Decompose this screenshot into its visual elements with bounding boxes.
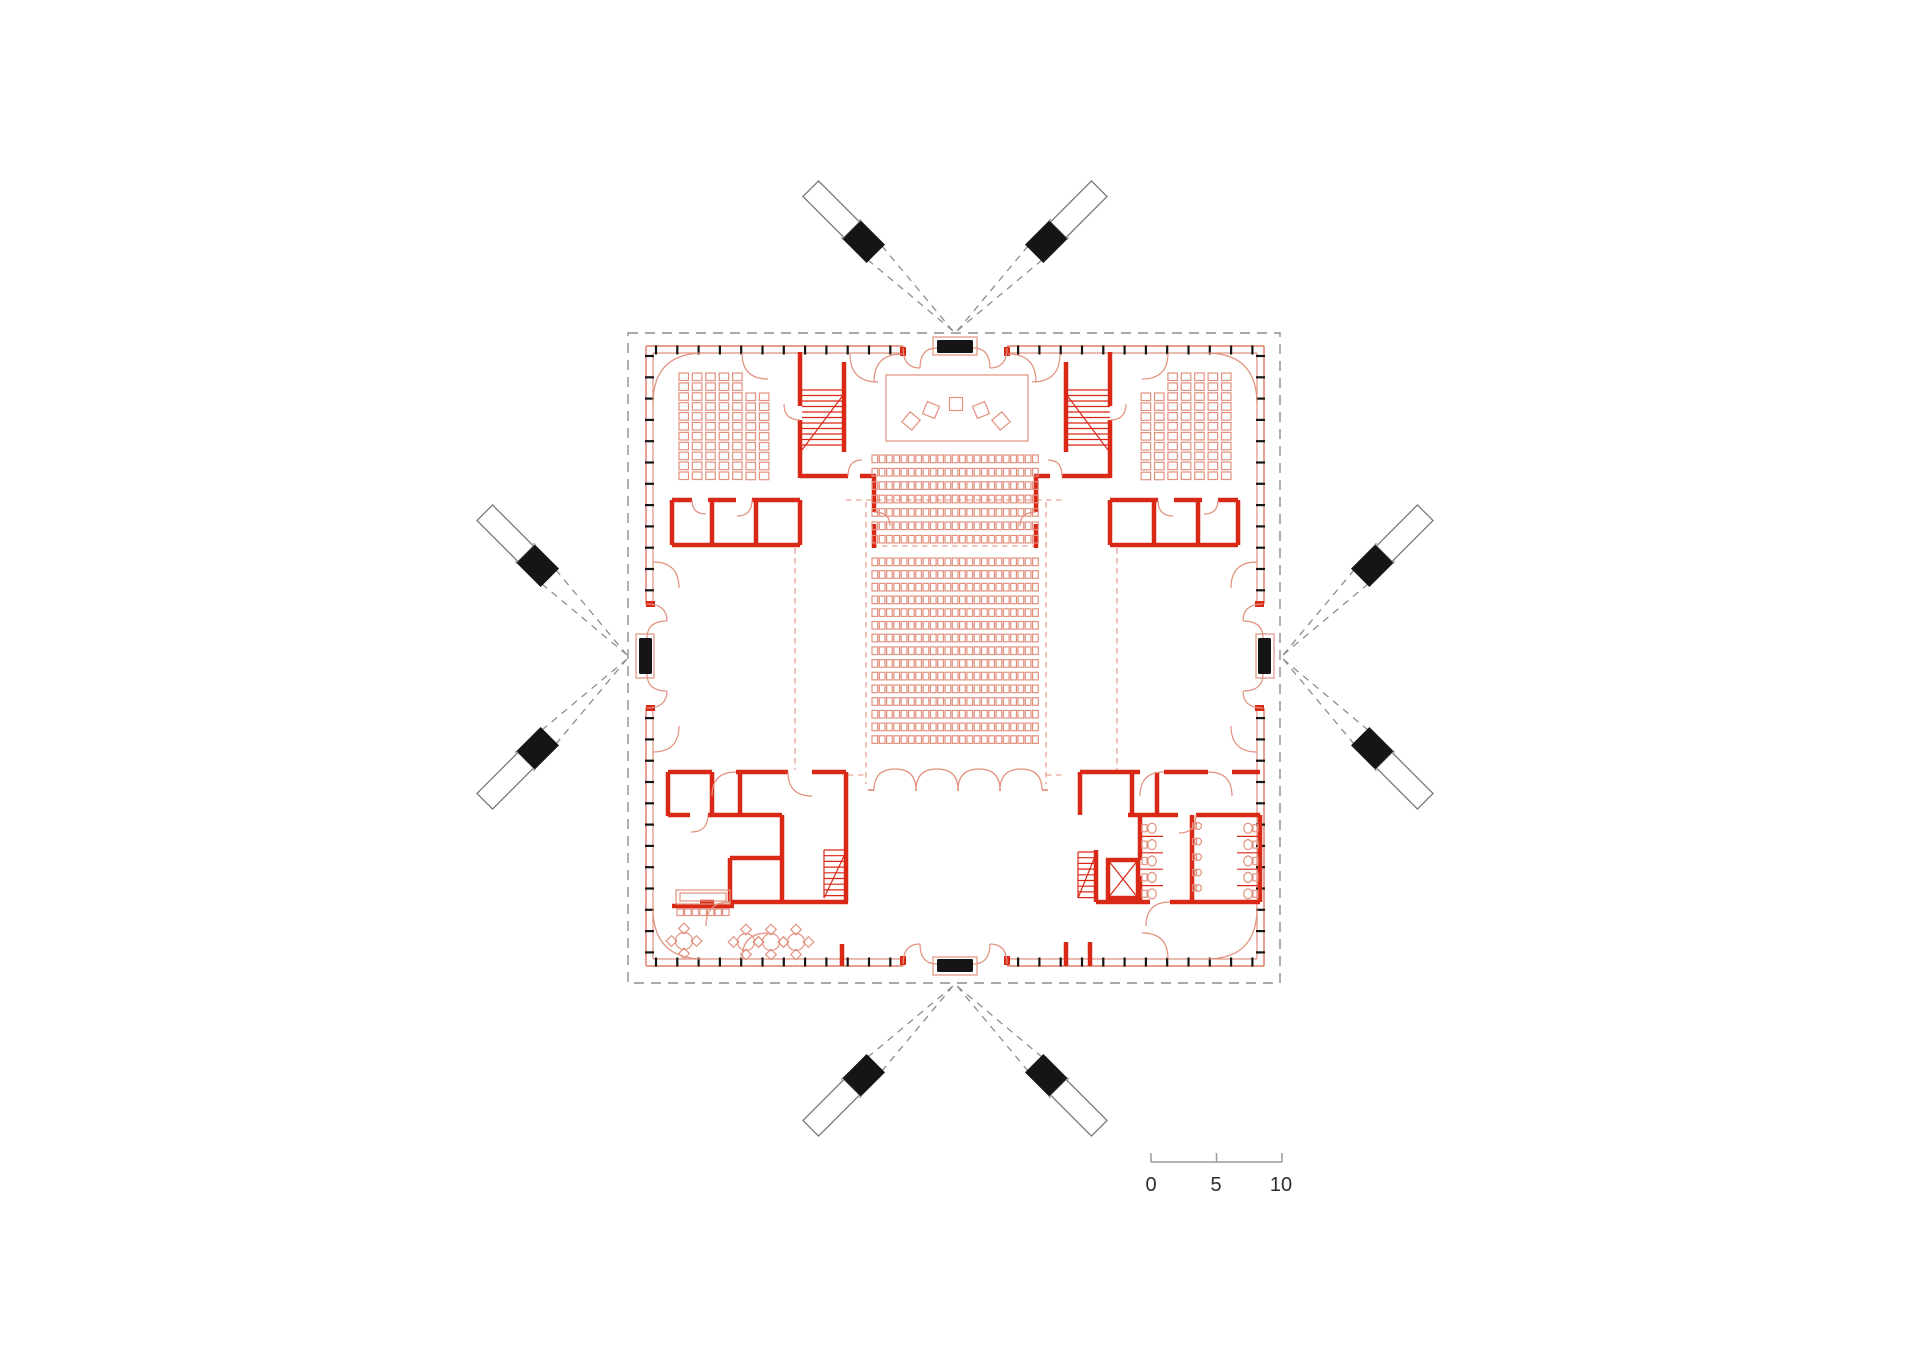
seat xyxy=(960,660,966,668)
seat xyxy=(945,455,951,463)
seat xyxy=(1025,482,1031,490)
seat xyxy=(930,522,936,530)
double-door-swing xyxy=(958,769,1000,790)
facade-mullion-ticks xyxy=(645,346,1265,967)
seat xyxy=(706,393,716,401)
seat xyxy=(916,698,922,706)
seat xyxy=(982,522,988,530)
facade-envelope xyxy=(645,346,1265,967)
seat xyxy=(923,495,929,503)
seat xyxy=(960,647,966,655)
toilet-bowl xyxy=(1148,823,1156,833)
seat xyxy=(679,432,689,440)
seat xyxy=(1033,698,1039,706)
seat xyxy=(887,634,893,642)
seat xyxy=(1003,622,1009,630)
seat xyxy=(679,393,689,401)
seat xyxy=(1018,495,1024,503)
seat xyxy=(1003,698,1009,706)
seat xyxy=(982,698,988,706)
seat xyxy=(967,558,973,566)
seat xyxy=(982,571,988,579)
seat xyxy=(879,736,885,744)
seat xyxy=(967,583,973,591)
seat xyxy=(692,413,702,421)
seat xyxy=(1033,583,1039,591)
seat xyxy=(887,672,893,680)
mast-body xyxy=(803,181,860,238)
seat xyxy=(909,634,915,642)
seat xyxy=(945,698,951,706)
stage-outline xyxy=(886,375,1028,441)
seat xyxy=(930,509,936,517)
seat xyxy=(960,596,966,604)
seat xyxy=(746,413,756,421)
seat xyxy=(894,685,900,693)
seat xyxy=(945,723,951,731)
seat xyxy=(909,609,915,617)
seat xyxy=(989,672,995,680)
seat xyxy=(1018,672,1024,680)
seat xyxy=(952,509,958,517)
double-door-swing xyxy=(1000,769,1042,790)
scale-bar-line xyxy=(1151,1153,1282,1162)
seat xyxy=(1025,647,1031,655)
seat xyxy=(887,710,893,718)
seat xyxy=(879,468,885,476)
seat xyxy=(989,571,995,579)
seat xyxy=(982,482,988,490)
seat xyxy=(982,509,988,517)
scale-bar: 0 5 10 xyxy=(1145,1153,1292,1196)
seat xyxy=(996,723,1002,731)
seat xyxy=(916,571,922,579)
seat xyxy=(996,698,1002,706)
corner-door-swings xyxy=(653,353,1257,959)
seat xyxy=(989,522,995,530)
seat xyxy=(960,685,966,693)
seat xyxy=(733,423,743,431)
seat xyxy=(938,647,944,655)
seat xyxy=(982,685,988,693)
seat xyxy=(923,710,929,718)
seat xyxy=(894,455,900,463)
seat xyxy=(733,383,743,391)
seat xyxy=(692,462,702,470)
scale-label-5: 5 xyxy=(1210,1174,1221,1196)
seat xyxy=(872,583,878,591)
seat xyxy=(909,710,915,718)
seat xyxy=(1011,622,1017,630)
seat xyxy=(996,672,1002,680)
bar-stool xyxy=(677,909,684,916)
seat xyxy=(982,660,988,668)
seat xyxy=(909,660,915,668)
seat xyxy=(930,535,936,543)
seat xyxy=(1003,468,1009,476)
seat xyxy=(916,609,922,617)
seat xyxy=(894,736,900,744)
seat xyxy=(872,634,878,642)
seat xyxy=(945,571,951,579)
seat xyxy=(1003,672,1009,680)
seat xyxy=(923,685,929,693)
seat xyxy=(996,468,1002,476)
seat xyxy=(989,710,995,718)
seat xyxy=(952,647,958,655)
seat xyxy=(901,522,907,530)
seat xyxy=(952,482,958,490)
seat xyxy=(872,723,878,731)
seat xyxy=(872,736,878,744)
stair-detail xyxy=(824,850,846,898)
seat xyxy=(916,522,922,530)
seat xyxy=(901,672,907,680)
seat xyxy=(952,685,958,693)
seat xyxy=(1003,634,1009,642)
seat xyxy=(894,482,900,490)
seat xyxy=(879,723,885,731)
seat xyxy=(1025,535,1031,543)
seat xyxy=(879,660,885,668)
seat xyxy=(945,468,951,476)
cluster-walls xyxy=(672,352,876,548)
seat xyxy=(909,522,915,530)
seat xyxy=(1025,736,1031,744)
seat xyxy=(952,710,958,718)
seat xyxy=(1018,685,1024,693)
seat xyxy=(996,509,1002,517)
seat xyxy=(1003,455,1009,463)
seat xyxy=(887,660,893,668)
seat xyxy=(1003,583,1009,591)
seat xyxy=(887,558,893,566)
seat xyxy=(719,472,729,480)
seat xyxy=(960,468,966,476)
seat xyxy=(901,647,907,655)
seating-grid-left xyxy=(679,373,769,480)
mast-body xyxy=(1376,752,1433,809)
seat xyxy=(923,622,929,630)
seat xyxy=(706,462,716,470)
seat xyxy=(1033,634,1039,642)
seat xyxy=(982,622,988,630)
mast xyxy=(476,650,637,811)
seat xyxy=(872,685,878,693)
seat xyxy=(923,571,929,579)
seat xyxy=(1033,710,1039,718)
auditorium-door-row xyxy=(868,769,1048,790)
seat xyxy=(719,462,729,470)
toilet-bowl xyxy=(1148,872,1156,882)
seat xyxy=(1018,736,1024,744)
seat xyxy=(719,442,729,450)
seat xyxy=(1003,495,1009,503)
seat xyxy=(967,455,973,463)
seat xyxy=(989,647,995,655)
wash-basin xyxy=(1195,838,1202,845)
seat xyxy=(872,609,878,617)
seat xyxy=(967,698,973,706)
seat xyxy=(974,622,980,630)
seat xyxy=(879,482,885,490)
entrance-bottom xyxy=(903,944,1007,975)
seat xyxy=(1033,596,1039,604)
seat xyxy=(923,723,929,731)
seat xyxy=(692,452,702,460)
seat xyxy=(1018,596,1024,604)
bar-stool xyxy=(692,909,699,916)
mast-body xyxy=(1376,505,1433,562)
cafe-table xyxy=(788,934,805,951)
mast xyxy=(1274,650,1435,811)
seat xyxy=(1033,558,1039,566)
facade-outer-line xyxy=(646,346,1264,966)
seat xyxy=(930,455,936,463)
seat xyxy=(909,672,915,680)
seat xyxy=(916,455,922,463)
seat xyxy=(930,685,936,693)
seat xyxy=(719,403,729,411)
mast-body xyxy=(477,752,534,809)
mast-body xyxy=(1050,1079,1107,1136)
seat xyxy=(960,622,966,630)
seat xyxy=(1033,736,1039,744)
bar-stool xyxy=(685,909,692,916)
seat xyxy=(967,634,973,642)
stair-diagonal xyxy=(802,394,844,450)
cafe-table xyxy=(763,934,780,951)
seat xyxy=(916,723,922,731)
seat xyxy=(1018,723,1024,731)
seat xyxy=(916,647,922,655)
toilet-bowl xyxy=(1244,823,1252,833)
seat xyxy=(879,609,885,617)
seat xyxy=(901,736,907,744)
seat xyxy=(1033,455,1039,463)
seat xyxy=(967,609,973,617)
seat xyxy=(974,698,980,706)
seat xyxy=(887,571,893,579)
wash-basin xyxy=(1195,823,1202,830)
stage-chair xyxy=(902,412,920,430)
seat xyxy=(872,710,878,718)
seat xyxy=(982,558,988,566)
seat xyxy=(952,596,958,604)
seat xyxy=(916,736,922,744)
seat xyxy=(923,558,929,566)
seat xyxy=(989,468,995,476)
seat xyxy=(923,482,929,490)
seat xyxy=(974,583,980,591)
seat xyxy=(894,495,900,503)
seat xyxy=(938,609,944,617)
seat xyxy=(759,452,769,460)
stair-treads xyxy=(1066,390,1110,445)
seat xyxy=(1025,622,1031,630)
seat xyxy=(982,723,988,731)
seat xyxy=(996,495,1002,503)
seat xyxy=(930,634,936,642)
seat xyxy=(967,535,973,543)
seat xyxy=(945,558,951,566)
bar-stool xyxy=(715,909,722,916)
seat xyxy=(945,509,951,517)
seat xyxy=(1033,685,1039,693)
seat xyxy=(923,509,929,517)
seat xyxy=(1018,698,1024,706)
seat xyxy=(692,472,702,480)
seat xyxy=(879,522,885,530)
seat xyxy=(894,634,900,642)
seat xyxy=(930,583,936,591)
seat xyxy=(1033,723,1039,731)
seat xyxy=(974,736,980,744)
seat xyxy=(746,452,756,460)
seat xyxy=(1025,596,1031,604)
seat xyxy=(1025,609,1031,617)
seat xyxy=(887,609,893,617)
seat xyxy=(930,660,936,668)
seat xyxy=(887,596,893,604)
seat xyxy=(1003,509,1009,517)
seat xyxy=(989,596,995,604)
seat xyxy=(989,622,995,630)
seat xyxy=(733,472,743,480)
seat xyxy=(974,495,980,503)
seat xyxy=(679,472,689,480)
seat xyxy=(746,443,756,451)
seat xyxy=(974,509,980,517)
seat xyxy=(692,393,702,401)
toilet-tank xyxy=(1142,825,1147,832)
seat xyxy=(887,647,893,655)
seat xyxy=(996,522,1002,530)
seat xyxy=(982,596,988,604)
seat xyxy=(1033,609,1039,617)
seat xyxy=(1003,522,1009,530)
seat xyxy=(879,685,885,693)
seat xyxy=(967,622,973,630)
double-door-swing xyxy=(874,769,916,790)
seat xyxy=(916,672,922,680)
seat xyxy=(872,596,878,604)
seat xyxy=(692,432,702,440)
seat xyxy=(952,698,958,706)
seat xyxy=(1025,583,1031,591)
seat xyxy=(706,432,716,440)
seat xyxy=(1025,558,1031,566)
seat xyxy=(938,596,944,604)
seat xyxy=(887,482,893,490)
seat xyxy=(967,736,973,744)
stair-treads xyxy=(802,390,844,445)
seat xyxy=(733,413,743,421)
seat xyxy=(1011,596,1017,604)
seat xyxy=(996,571,1002,579)
seat xyxy=(960,583,966,591)
seat xyxy=(733,452,743,460)
stage-chair xyxy=(923,402,940,419)
seat xyxy=(1011,583,1017,591)
seat xyxy=(974,571,980,579)
seat xyxy=(1025,672,1031,680)
seat xyxy=(982,710,988,718)
seat xyxy=(967,685,973,693)
seat xyxy=(909,647,915,655)
floor-plan-canvas: 0 5 10 xyxy=(0,0,1920,1358)
seat xyxy=(909,736,915,744)
seat xyxy=(901,609,907,617)
stage-chair xyxy=(992,412,1010,430)
seat xyxy=(1033,571,1039,579)
seat xyxy=(982,634,988,642)
seat xyxy=(945,647,951,655)
seat xyxy=(923,660,929,668)
seat xyxy=(692,373,702,381)
stage-chair xyxy=(950,398,963,411)
seat xyxy=(1011,609,1017,617)
seat xyxy=(916,685,922,693)
seat xyxy=(938,571,944,579)
seat xyxy=(938,509,944,517)
seat xyxy=(960,495,966,503)
seat xyxy=(679,403,689,411)
seat xyxy=(916,482,922,490)
seat xyxy=(679,373,689,381)
seat xyxy=(692,442,702,450)
seat xyxy=(901,660,907,668)
seat xyxy=(759,462,769,470)
seat xyxy=(1003,736,1009,744)
seat xyxy=(952,672,958,680)
seat xyxy=(746,423,756,431)
seat xyxy=(887,698,893,706)
seat xyxy=(706,383,716,391)
seat xyxy=(960,723,966,731)
seat xyxy=(894,583,900,591)
seat xyxy=(1018,571,1024,579)
seat xyxy=(996,482,1002,490)
seat xyxy=(1018,468,1024,476)
seat xyxy=(960,672,966,680)
toilet-tank xyxy=(1142,874,1147,881)
seat xyxy=(887,723,893,731)
seat xyxy=(952,634,958,642)
seat xyxy=(872,698,878,706)
seat xyxy=(901,482,907,490)
drawing-sheet: 0 5 10 xyxy=(0,0,1920,1358)
cafe-table xyxy=(676,933,693,950)
toilet-bowl xyxy=(1244,840,1252,850)
seat xyxy=(960,522,966,530)
mast xyxy=(1274,504,1435,665)
facade-inner-line xyxy=(653,353,1257,959)
seat xyxy=(872,622,878,630)
seat xyxy=(1011,468,1017,476)
seat xyxy=(1025,522,1031,530)
seat xyxy=(945,660,951,668)
seat xyxy=(952,583,958,591)
seat xyxy=(901,495,907,503)
seat xyxy=(1011,685,1017,693)
seat xyxy=(746,393,756,401)
seat xyxy=(719,452,729,460)
seat xyxy=(879,495,885,503)
seat xyxy=(1003,710,1009,718)
seat xyxy=(1018,609,1024,617)
seat xyxy=(974,685,980,693)
